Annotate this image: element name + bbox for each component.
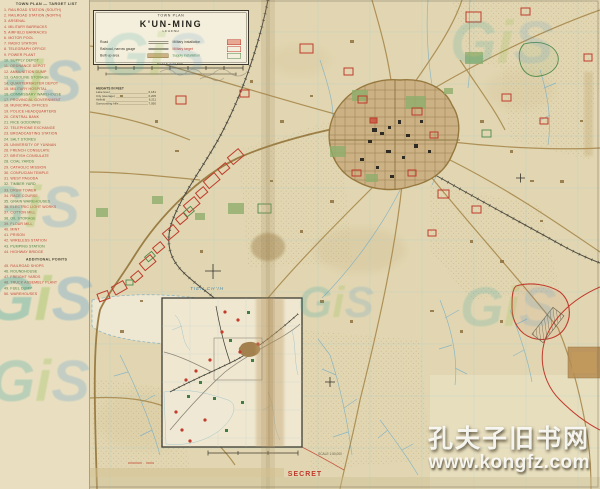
legend-row: Railroad, narrow gaugeMilitary target: [100, 46, 245, 53]
elevation-note: HEIGHTS IN FEET Lake level6,181City (ave…: [96, 87, 171, 106]
legend-symbol-red-open: [227, 46, 241, 52]
elevation-row: Surrounding hills7,050: [96, 102, 156, 106]
legend-row: RoadMilitary installation: [100, 39, 245, 46]
target-list-subheading: ADDITIONAL POINTS: [4, 258, 89, 262]
legend-symbol-red-filled: [227, 40, 241, 46]
security-classification: SECRET: [270, 471, 340, 478]
inset-scale-label: SCALE 1:50,000: [318, 452, 342, 456]
title-legend-box: TOWN PLAN K'UN-MING LEGEND RoadMilitary …: [93, 10, 249, 65]
target-list: TOWN PLAN — TARGET LIST 1. RAILROAD STAT…: [4, 2, 89, 297]
target-list-item: 50. WAREHOUSES: [4, 292, 89, 298]
legend-symbol-rail: [149, 49, 169, 50]
legend-label: Built-up area: [100, 54, 119, 58]
legend-heading: LEGEND: [130, 30, 213, 33]
legend-label: Supply installation: [173, 54, 200, 58]
legend-symbol-built: [148, 54, 169, 59]
legend-label: Railroad, narrow gauge: [100, 47, 135, 51]
target-list-heading: TOWN PLAN — TARGET LIST: [4, 2, 89, 6]
target-list-items: 1. RAILROAD STATION (SOUTH)2. RAILROAD S…: [4, 8, 89, 256]
legend-symbol-road: [149, 41, 169, 44]
lake-label: TIEN CH'IH: [190, 286, 224, 291]
target-list-sub-items: 45. RAILROAD SHOPS46. ROUNDHOUSE47. FREI…: [4, 264, 89, 298]
map-title: K'UN-MING: [96, 19, 246, 29]
scale-caption: SCALE 1:12,500: [132, 63, 209, 66]
legend-label: Military target: [173, 47, 193, 51]
map-kicker: TOWN PLAN: [126, 14, 216, 18]
legend-label: Military installation: [173, 41, 201, 45]
legend-row: Built-up areaSupply installation: [100, 53, 245, 60]
elevation-heading: HEIGHTS IN FEET: [96, 87, 171, 91]
scanned-map-image: TIEN CH'IH: [0, 0, 600, 489]
legend-rows: RoadMilitary installationRailroad, narro…: [100, 39, 245, 59]
target-list-item: 44. HIGHWAY BRIDGE: [4, 250, 89, 256]
legend-symbol-green-open: [227, 53, 241, 59]
legend-label: Road: [100, 41, 108, 45]
